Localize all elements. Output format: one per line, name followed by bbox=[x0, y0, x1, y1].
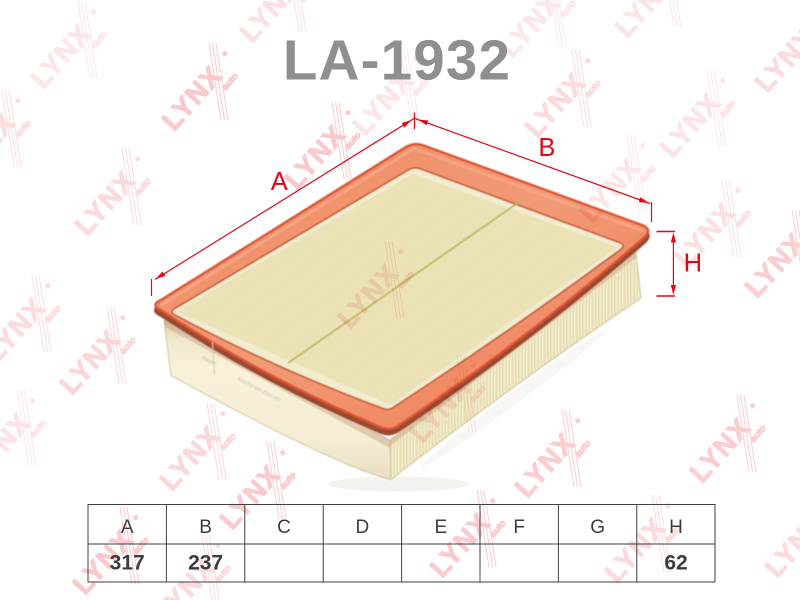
svg-text:E: E bbox=[434, 517, 447, 538]
svg-text:G: G bbox=[590, 517, 605, 538]
svg-text:A: A bbox=[271, 168, 288, 196]
svg-text:317: 317 bbox=[110, 552, 145, 575]
svg-text:A: A bbox=[121, 517, 134, 538]
svg-text:H: H bbox=[684, 250, 702, 278]
svg-text:D: D bbox=[356, 517, 370, 538]
svg-text:C: C bbox=[277, 517, 291, 538]
svg-text:H: H bbox=[669, 517, 683, 538]
svg-text:B: B bbox=[538, 134, 555, 162]
svg-text:LA-1932: LA-1932 bbox=[283, 29, 511, 92]
svg-text:62: 62 bbox=[664, 552, 687, 575]
svg-text:237: 237 bbox=[188, 552, 223, 575]
svg-text:B: B bbox=[199, 517, 212, 538]
svg-text:F: F bbox=[513, 517, 525, 538]
